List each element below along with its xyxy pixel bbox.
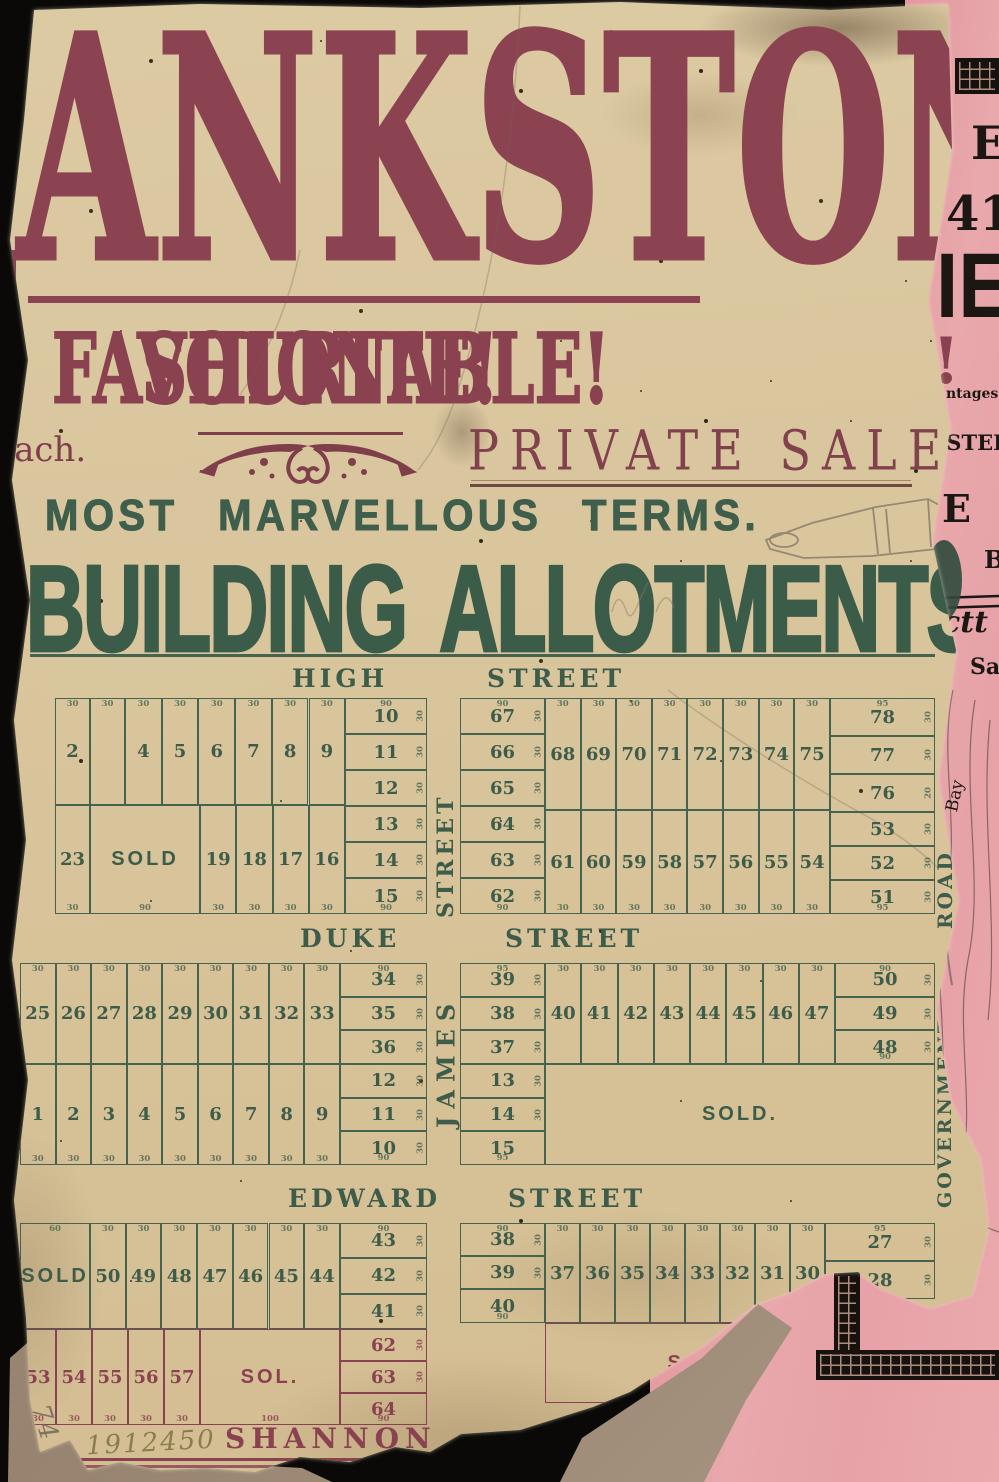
lot-number: 26: [57, 964, 91, 1063]
lot-dimension: 90: [497, 700, 509, 709]
lot-dimension: 30: [630, 965, 642, 974]
lot-44: 4430: [304, 1223, 340, 1329]
lot-number: 56: [129, 1330, 163, 1424]
lot-number: 35: [341, 998, 426, 1030]
lot-number: 19: [201, 806, 235, 913]
lot-77: 7730: [830, 736, 935, 774]
lot-57: 5730: [687, 810, 723, 914]
lot-64: 6490: [340, 1393, 427, 1425]
lot-35: 3530: [340, 997, 427, 1031]
lot-13: 1330: [345, 806, 427, 842]
lot-dimension: 30: [67, 700, 79, 709]
lot-number: 73: [724, 699, 758, 809]
lot-dimension: 30: [321, 700, 333, 709]
lot-15: 159030: [345, 878, 427, 914]
lot-14: 1430: [460, 1098, 545, 1132]
lot-59: 5930: [616, 810, 652, 914]
lot-number: 38: [461, 998, 544, 1030]
lot-dimension: 30: [592, 700, 604, 709]
lot-number: 36: [581, 1224, 614, 1322]
lot-number: 54: [795, 811, 829, 913]
lot-dimension: 30: [103, 965, 115, 974]
lot-2: 230: [55, 698, 90, 805]
lot-number: 8: [273, 699, 308, 804]
lot-49: 4930: [835, 997, 935, 1031]
lot-33: 3330: [304, 963, 340, 1064]
lot-70: 7030: [616, 698, 652, 810]
lot-dimension: 30: [210, 1155, 222, 1164]
lot-number: SOLD: [91, 806, 199, 913]
lot-number: 60: [582, 811, 616, 913]
lot-62: 629030: [460, 878, 545, 914]
lot-dimension: 30: [735, 904, 747, 913]
lot-number: 11: [341, 1099, 426, 1131]
lot-46: 4630: [763, 963, 799, 1064]
lot-48: 4830: [161, 1223, 197, 1329]
lot-dimension: 90: [879, 1053, 891, 1062]
lot-8: 830: [272, 698, 309, 805]
lot-number: 28: [128, 964, 162, 1063]
sold-area: SOLD60: [20, 1223, 90, 1329]
map-left-stub: [0, 700, 11, 702]
lot-number: 61: [546, 811, 580, 913]
lot-dimension: 30: [535, 1109, 544, 1121]
lot-number: 59: [617, 811, 651, 913]
lot-dimension: 30: [139, 1155, 151, 1164]
lot-40: 4030: [545, 963, 581, 1064]
lot-number: 4: [126, 699, 161, 804]
lot-dimension: 30: [925, 974, 934, 986]
lot-number: 32: [721, 1224, 754, 1322]
lot-7: 730: [235, 698, 272, 805]
lot-number: 2: [57, 1065, 91, 1164]
lot-dimension: 30: [248, 700, 260, 709]
lot-10: 109030: [340, 1131, 427, 1165]
lot-12: 1230: [340, 1064, 427, 1098]
lot-10: 109030: [345, 698, 427, 734]
lot-dimension: 30: [627, 1225, 639, 1234]
lot-dimension: 30: [699, 904, 711, 913]
lot-number: 8: [270, 1065, 304, 1164]
lot-number: 5: [163, 1065, 197, 1164]
lot-dimension: 30: [592, 1225, 604, 1234]
map-block-high-east: 6790306630653064306330629030683069307030…: [460, 698, 935, 914]
lot-dimension: 30: [285, 904, 297, 913]
lot-dimension: 30: [735, 700, 747, 709]
lot-28: 2830: [127, 963, 163, 1064]
lot-33: 3330: [685, 1223, 720, 1323]
lot-dimension: 30: [628, 904, 640, 913]
lot-dimension: 30: [925, 1236, 934, 1248]
lot-dimension: 30: [417, 746, 426, 758]
lot-number: 55: [93, 1330, 127, 1424]
lot-52: 5230: [830, 846, 935, 880]
lot-dimension: 30: [535, 1008, 544, 1020]
lot-dimension: 30: [417, 1041, 426, 1053]
lot-number: 44: [305, 1224, 339, 1328]
lot-number: 46: [234, 1224, 268, 1328]
lot-74: 7430: [759, 698, 795, 810]
lot-number: 31: [234, 964, 268, 1063]
lot-number: 49: [836, 998, 934, 1030]
lot-11: 1130: [345, 734, 427, 770]
lot-dimension: 30: [732, 1225, 744, 1234]
lot-number: 40: [546, 964, 580, 1063]
map-left-stub: [0, 790, 11, 792]
lot-34: 3430: [650, 1223, 685, 1323]
lot-47: 4730: [799, 963, 835, 1064]
lot-14: 1430: [345, 842, 427, 878]
lot-number: 55: [760, 811, 794, 913]
lot-dimension: 30: [557, 965, 569, 974]
lot-number: 31: [756, 1224, 789, 1322]
map-left-stub: [10, 657, 12, 829]
lot-dimension: 30: [925, 857, 934, 869]
lot-dimension: 30: [245, 1155, 257, 1164]
map-block-duke-west: 2530263027302830293030303130323033303490…: [20, 963, 427, 1165]
lot-9: 930: [304, 1064, 340, 1165]
lot-60: 6030: [581, 810, 617, 914]
lot-6: 630: [198, 1064, 234, 1165]
lot-31: 3130: [755, 1223, 790, 1323]
lot-dimension: 30: [284, 700, 296, 709]
lot-number: 12: [341, 1065, 426, 1097]
lot-30: 3030: [198, 963, 234, 1064]
lot-dimension: 95: [877, 904, 889, 913]
lot-dimension: 90: [378, 965, 390, 974]
lot-19: 1930: [200, 805, 236, 914]
lot-dimension: 30: [104, 1415, 116, 1424]
lot-number: 11: [346, 735, 426, 769]
lot-number: 53: [831, 813, 934, 845]
lot-dimension: 30: [138, 1225, 150, 1234]
lot-dimension: 30: [281, 965, 293, 974]
lot-number: 57: [165, 1330, 199, 1424]
map-block-edward-east: 3890303930409037303630353034303330323031…: [460, 1223, 935, 1423]
sold-area: SOLD90: [90, 805, 200, 914]
lot-37: 3730: [460, 1030, 545, 1064]
lot-29: 2930: [162, 963, 198, 1064]
lot-dimension: 30: [775, 965, 787, 974]
lot-number: 41: [341, 1295, 426, 1328]
lot-dimension: 30: [664, 904, 676, 913]
lot-54: 5430: [56, 1329, 92, 1425]
lot-11: 1130: [340, 1098, 427, 1132]
lot-number: 14: [346, 843, 426, 877]
lot-7: 730: [233, 1064, 269, 1165]
map-block-edward-west: SOLD605030493048304730463045304430439030…: [20, 1223, 427, 1425]
lot-dimension: 30: [211, 700, 223, 709]
lot-number: 30: [791, 1224, 824, 1322]
lot-25: 2530: [20, 963, 56, 1064]
lot-dimension: 90: [497, 904, 509, 913]
lot-42: 4230: [340, 1258, 427, 1293]
lot-66: 6630: [460, 734, 545, 770]
lot-58: 5830: [652, 810, 688, 914]
lot-blank: 30: [90, 698, 125, 805]
lot-number: 1: [21, 1065, 55, 1164]
lot-dimension: 30: [535, 818, 544, 830]
lot-number: 35: [616, 1224, 649, 1322]
lot-dimension: 30: [102, 700, 114, 709]
lot-27: 2730: [91, 963, 127, 1064]
lot-dimension: 95: [497, 1154, 509, 1163]
lot-dimension: 90: [378, 1415, 390, 1424]
lot-number: 6: [199, 1065, 233, 1164]
lot-41: 4130: [581, 963, 617, 1064]
lot-dimension: 30: [417, 1339, 426, 1351]
lot-31: 3130: [233, 963, 269, 1064]
lot-dimension: 30: [535, 1075, 544, 1087]
lot-dimension: 30: [210, 965, 222, 974]
lot-dimension: 90: [139, 904, 151, 913]
lot-78: 789530: [830, 698, 935, 736]
lot-dimension: 30: [280, 1225, 292, 1234]
lot-dimension: 30: [770, 904, 782, 913]
sold-area: SOL.100: [200, 1329, 340, 1425]
lot-dimension: 30: [557, 1225, 569, 1234]
lot-dimension: 30: [925, 711, 934, 723]
lot-62: 6230: [340, 1329, 427, 1361]
lot-number: 75: [795, 699, 829, 809]
lot-dimension: 95: [874, 1225, 886, 1234]
lot-number: 28: [826, 1262, 934, 1298]
lot-dimension: 30: [417, 1305, 426, 1317]
lot-63: 6330: [460, 842, 545, 878]
lot-dimension: 30: [417, 710, 426, 722]
lot-2: 230: [56, 1064, 92, 1165]
lot-number: 14: [461, 1099, 544, 1131]
lot-dimension: 30: [535, 1041, 544, 1053]
lot-number: 43: [655, 964, 689, 1063]
lot-number: 16: [310, 806, 344, 913]
torn-letter-fragment: [0, 207, 10, 247]
scanned-poster-photo: E41IE!ntagesASTEREBcttSaBayPI ANKSTON FA…: [0, 0, 999, 1482]
lot-18: 1830: [236, 805, 272, 914]
lot-number: 42: [619, 964, 653, 1063]
sold-area: SO: [545, 1323, 825, 1403]
lot-number: 3: [92, 1065, 126, 1164]
lot-38: 389030: [460, 1223, 545, 1256]
lot-number: 12: [346, 771, 426, 805]
lot-number: 45: [270, 1224, 304, 1328]
lot-dimension: 30: [67, 965, 79, 974]
lot-number: 25: [21, 964, 55, 1063]
lot-number: 39: [461, 1257, 544, 1288]
lot-55: 5530: [92, 1329, 128, 1425]
lot-number: 64: [461, 807, 544, 841]
lot-number: 63: [461, 843, 544, 877]
lot-dimension: 30: [925, 1274, 934, 1286]
lot-48: 489030: [835, 1030, 935, 1064]
lot-number: 33: [305, 964, 339, 1063]
lot-number: 32: [270, 964, 304, 1063]
map-block-duke-east: 3995303830373013301430159540304130423043…: [460, 963, 935, 1165]
lot-dimension: 30: [139, 965, 151, 974]
lot-51: 519530: [830, 880, 935, 914]
lot-dimension: 30: [245, 1225, 257, 1234]
lot-number: 23: [56, 806, 89, 913]
lot-dimension: 30: [739, 965, 751, 974]
lot-dimension: 30: [316, 965, 328, 974]
lot-54: 5430: [794, 810, 830, 914]
lot-dimension: 30: [628, 700, 640, 709]
lot-number: 57: [688, 811, 722, 913]
lot-dimension: 30: [281, 1155, 293, 1164]
lot-dimension: 30: [249, 904, 261, 913]
lot-dimension: 30: [802, 1225, 814, 1234]
lot-dimension: 30: [925, 1008, 934, 1020]
lot-number: 36: [341, 1031, 426, 1063]
lot-45: 4530: [726, 963, 762, 1064]
lot-dimension: 30: [662, 1225, 674, 1234]
lot-56: 5630: [723, 810, 759, 914]
lot-dimension: 95: [877, 700, 889, 709]
lot-dimension: 90: [497, 1225, 509, 1234]
lot-43: 439030: [340, 1223, 427, 1258]
lot-dimension: 30: [417, 818, 426, 830]
lot-number: 46: [764, 964, 798, 1063]
lot-dimension: 30: [811, 965, 823, 974]
lot-67: 679030: [460, 698, 545, 734]
lot-dimension: 30: [925, 749, 934, 761]
lot-36: 3630: [340, 1030, 427, 1064]
lot-dimension: 60: [49, 1225, 61, 1234]
lot-dimension: 30: [417, 974, 426, 986]
lot-dimension: 30: [173, 1225, 185, 1234]
lot-68: 6830: [545, 698, 581, 810]
lot-44: 4430: [690, 963, 726, 1064]
lot-dimension: 30: [212, 904, 224, 913]
lot-dimension: 30: [174, 965, 186, 974]
lot-28: 2830: [825, 1261, 935, 1299]
lot-dimension: 30: [535, 890, 544, 902]
lot-dimension: 30: [770, 700, 782, 709]
lot-46: 4630: [233, 1223, 269, 1329]
lot-number: 47: [198, 1224, 232, 1328]
lot-number: 37: [546, 1224, 579, 1322]
lot-number: 17: [274, 806, 308, 913]
lot-dimension: 30: [535, 746, 544, 758]
lot-4: 430: [125, 698, 162, 805]
lot-dimension: 30: [245, 965, 257, 974]
lot-dimension: 30: [535, 1234, 544, 1246]
lot-dimension: 30: [699, 700, 711, 709]
lot-16: 1630: [309, 805, 345, 914]
lot-30: 3030: [790, 1223, 825, 1323]
lot-number: 4: [128, 1065, 162, 1164]
lot-dimension: 30: [535, 854, 544, 866]
lot-38: 3830: [460, 997, 545, 1031]
lot-number: 29: [163, 964, 197, 1063]
lot-number: 9: [305, 1065, 339, 1164]
lot-dimension: 30: [594, 965, 606, 974]
lot-dimension: 90: [378, 1154, 390, 1163]
lot-dimension: 30: [174, 700, 186, 709]
lot-dimension: 30: [417, 890, 426, 902]
lot-32: 3230: [720, 1223, 755, 1323]
lot-dimension: 30: [417, 1075, 426, 1087]
lot-12: 1230: [345, 770, 427, 806]
lot-1: 130: [20, 1064, 56, 1165]
lot-number: 18: [237, 806, 271, 913]
lot-dimension: 30: [67, 1155, 79, 1164]
lot-9: 930: [309, 698, 346, 805]
lot-dimension: 30: [925, 823, 934, 835]
lot-36: 3630: [580, 1223, 615, 1323]
lot-dimension: 30: [925, 1041, 934, 1053]
lot-number: 48: [162, 1224, 196, 1328]
lot-number: 27: [92, 964, 126, 1063]
lot-number: 52: [831, 847, 934, 879]
lot-number: 13: [461, 1065, 544, 1097]
lot-number: 33: [686, 1224, 719, 1322]
foxing-specks: [0, 0, 2, 2]
lot-dimension: 30: [664, 700, 676, 709]
subdivision-map: 2303043053063073083093010903011301230133…: [0, 0, 999, 1482]
lot-dimension: 30: [702, 965, 714, 974]
lot-32: 3230: [269, 963, 305, 1064]
lot-71: 7130: [652, 698, 688, 810]
lot-number: 7: [236, 699, 271, 804]
lot-23: 2330: [55, 805, 90, 914]
lot-55: 5530: [759, 810, 795, 914]
lot-dimension: 30: [417, 854, 426, 866]
lot-8: 830: [269, 1064, 305, 1165]
lot-dimension: 30: [316, 1155, 328, 1164]
lot-35: 3530: [615, 1223, 650, 1323]
lot-43: 4330: [654, 963, 690, 1064]
lot-42: 4230: [618, 963, 654, 1064]
lot-dimension: 90: [378, 1225, 390, 1234]
lot-dimension: 30: [103, 1155, 115, 1164]
lot-75: 7530: [794, 698, 830, 810]
lot-dimension: 30: [316, 1225, 328, 1234]
lot-72: 7230: [687, 698, 723, 810]
lot-number: 58: [653, 811, 687, 913]
lot-dimension: 30: [557, 700, 569, 709]
poster-paper: ANKSTON FAVOURITE! FASHIONABLE! each. PR…: [0, 0, 999, 1482]
lot-number: 47: [800, 964, 834, 1063]
lot-dimension: 30: [666, 965, 678, 974]
lot-37: 3730: [545, 1223, 580, 1323]
lot-39: 3930: [460, 1256, 545, 1289]
lot-dimension: 30: [767, 1225, 779, 1234]
lot-number: 45: [727, 964, 761, 1063]
lot-dimension: 30: [417, 1142, 426, 1154]
lot-49: 4930: [126, 1223, 162, 1329]
lot-dimension: 30: [417, 1109, 426, 1121]
lot-number: 7: [234, 1065, 268, 1164]
lot-73: 7330: [723, 698, 759, 810]
lot-number: 56: [724, 811, 758, 913]
lot-number: 70: [617, 699, 651, 809]
lot-dimension: 30: [535, 974, 544, 986]
lot-number: 77: [831, 737, 934, 773]
lot-dimension: 30: [417, 1008, 426, 1020]
lot-number: 62: [341, 1330, 426, 1360]
lot-dimension: 30: [925, 891, 934, 903]
lot-number: 5: [163, 699, 198, 804]
lot-63: 6330: [340, 1361, 427, 1393]
lot-number: SOLD.: [546, 1065, 934, 1164]
poster-wrap: ANKSTON FAVOURITE! FASHIONABLE! each. PR…: [0, 0, 999, 1482]
lot-number: 44: [691, 964, 725, 1063]
lot-number: 63: [341, 1362, 426, 1392]
lot-number: 76: [831, 775, 934, 811]
lot-dimension: 30: [32, 965, 44, 974]
lot-61: 6130: [545, 810, 581, 914]
